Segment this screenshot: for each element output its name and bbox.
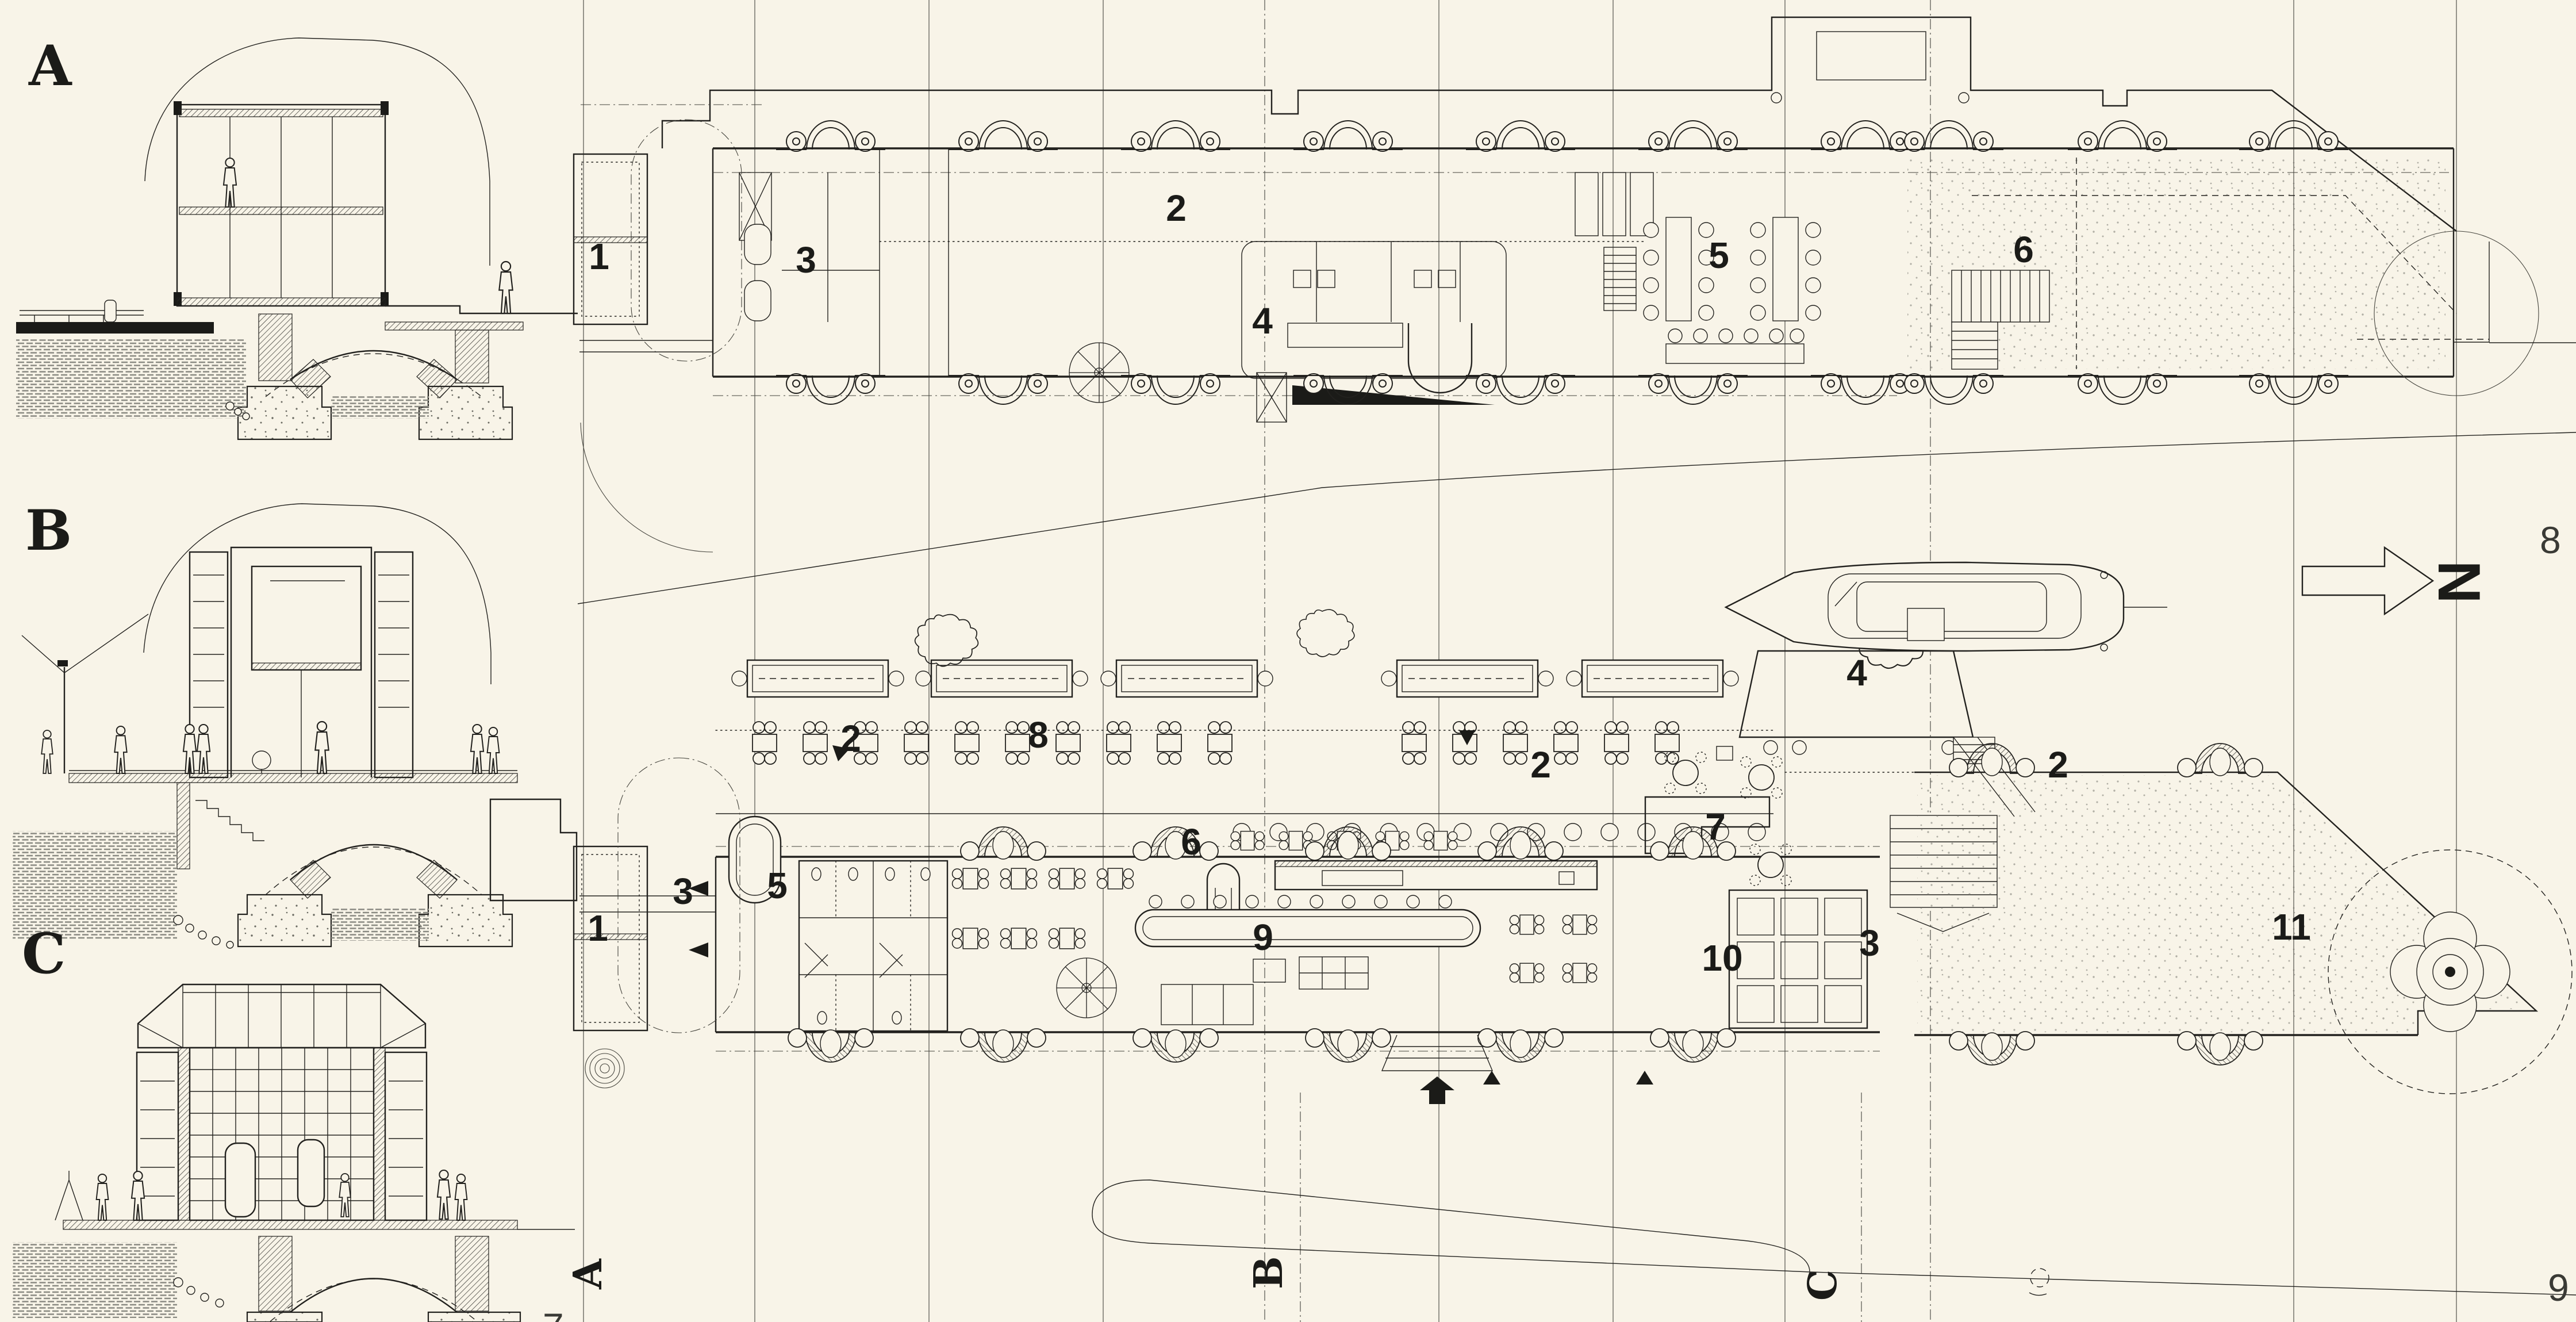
room-number-label: 11 <box>2272 906 2311 948</box>
room-number-label: 1 <box>588 907 608 949</box>
page-number: 7 <box>543 1305 564 1322</box>
section-marker: A <box>565 1258 611 1290</box>
room-number-label: 7 <box>1705 806 1726 848</box>
room-number-label: 2 <box>2048 744 2068 785</box>
north-label: N <box>2425 560 2492 603</box>
drawing-canvas: N <box>0 0 2576 1322</box>
scanned-architectural-drawing: N <box>0 0 2576 1322</box>
room-number-label: 2 <box>1530 744 1551 785</box>
room-number-label: 8 <box>1028 714 1049 756</box>
room-number-label: 5 <box>1709 235 1729 276</box>
room-number-label: 3 <box>1859 922 1880 964</box>
room-number-label: 3 <box>796 239 816 281</box>
page-number: 8 <box>2540 519 2561 561</box>
spiral-stair-icon <box>1057 958 1116 1018</box>
room-number-label: 5 <box>767 865 788 906</box>
room-number-label: 2 <box>1166 187 1187 229</box>
room-number-label: 4 <box>1846 652 1867 693</box>
page-number: 9 <box>2548 1266 2569 1309</box>
room-number-label: 4 <box>1252 300 1273 342</box>
section-letter: B <box>25 498 72 563</box>
room-number-label: 1 <box>589 236 609 277</box>
room-number-label: 9 <box>1253 917 1273 958</box>
section-marker: B <box>1246 1256 1292 1289</box>
room-number-label: 2 <box>840 718 861 759</box>
room-number-label: 3 <box>673 871 693 912</box>
room-number-label: 6 <box>2013 229 2034 270</box>
boat <box>1726 562 2167 651</box>
spiral-stair-icon <box>1069 343 1129 403</box>
section-marker: C <box>1800 1270 1846 1301</box>
room-number-label: 10 <box>1702 937 1742 979</box>
section-letter: C <box>22 921 66 986</box>
room-number-label: 6 <box>1181 821 1201 863</box>
section-letter: A <box>28 33 72 98</box>
